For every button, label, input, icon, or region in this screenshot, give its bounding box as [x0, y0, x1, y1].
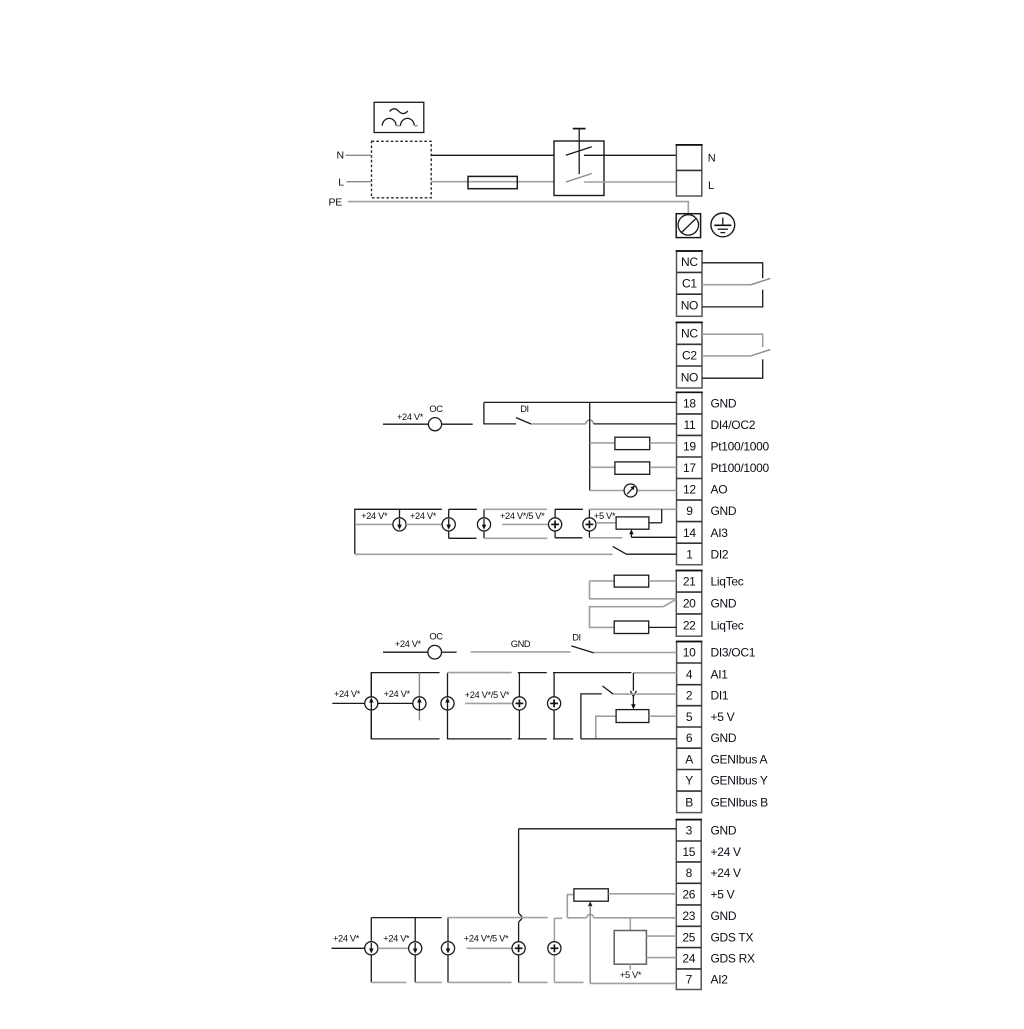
svg-text:+24 V: +24 V [711, 866, 741, 880]
svg-text:Y: Y [685, 774, 693, 788]
svg-text:GND: GND [711, 504, 737, 518]
svg-text:+5 V*: +5 V* [620, 970, 642, 980]
svg-text:GND: GND [711, 731, 737, 745]
svg-text:+5 V*: +5 V* [594, 511, 616, 521]
svg-text:L: L [338, 176, 344, 188]
svg-text:C2: C2 [682, 349, 697, 363]
svg-text:18: 18 [683, 397, 696, 411]
svg-text:+24 V*/5 V*: +24 V*/5 V* [500, 511, 545, 521]
svg-text:GDS RX: GDS RX [711, 952, 756, 966]
svg-text:+5 V: +5 V [711, 710, 735, 724]
svg-text:A: A [685, 752, 693, 766]
svg-text:LiqTec: LiqTec [711, 575, 744, 589]
svg-text:GENIbus A: GENIbus A [711, 752, 768, 766]
svg-text:21: 21 [683, 575, 696, 589]
svg-text:5: 5 [686, 710, 693, 724]
svg-text:6: 6 [686, 731, 693, 745]
svg-text:2: 2 [686, 689, 693, 703]
svg-text:NC: NC [681, 327, 698, 341]
svg-text:DI2: DI2 [711, 547, 729, 561]
svg-text:L: L [708, 180, 714, 192]
svg-text:DI: DI [572, 632, 581, 642]
svg-text:GENIbus B: GENIbus B [711, 795, 769, 809]
svg-text:1: 1 [686, 547, 693, 561]
svg-text:NC: NC [681, 255, 698, 269]
svg-text:GENIbus Y: GENIbus Y [711, 774, 768, 788]
svg-text:11: 11 [683, 418, 695, 432]
svg-text:14: 14 [683, 526, 696, 540]
svg-text:22: 22 [683, 618, 696, 632]
svg-text:DI3/OC1: DI3/OC1 [711, 646, 756, 660]
svg-text:+24 V*: +24 V* [384, 689, 411, 699]
svg-text:3: 3 [686, 824, 693, 838]
svg-text:15: 15 [682, 845, 695, 859]
svg-text:26: 26 [682, 888, 695, 902]
svg-text:10: 10 [683, 646, 696, 660]
svg-text:24: 24 [682, 952, 695, 966]
svg-text:GND: GND [711, 397, 737, 411]
svg-text:+24 V*: +24 V* [361, 511, 388, 521]
svg-text:AI2: AI2 [711, 973, 729, 987]
svg-text:8: 8 [686, 866, 693, 880]
svg-text:LiqTec: LiqTec [711, 618, 744, 632]
svg-text:12: 12 [683, 483, 696, 497]
svg-text:20: 20 [683, 596, 696, 610]
svg-text:+24 V*: +24 V* [395, 639, 422, 649]
svg-text:+24 V*/5 V*: +24 V*/5 V* [464, 934, 509, 944]
svg-text:25: 25 [682, 930, 695, 944]
svg-text:19: 19 [683, 440, 696, 454]
svg-text:AI3: AI3 [711, 526, 729, 540]
svg-text:7: 7 [686, 973, 693, 987]
svg-text:B: B [685, 795, 693, 809]
svg-text:17: 17 [683, 461, 696, 475]
svg-text:+24 V: +24 V [711, 845, 741, 859]
svg-text:DI: DI [520, 404, 529, 414]
svg-text:Pt100/1000: Pt100/1000 [711, 440, 770, 454]
svg-text:DI1: DI1 [711, 689, 729, 703]
svg-text:9: 9 [686, 504, 693, 518]
svg-text:GND: GND [711, 596, 737, 610]
svg-text:OC: OC [429, 404, 443, 414]
svg-text:+24 V*: +24 V* [334, 689, 361, 699]
svg-text:C1: C1 [682, 277, 697, 291]
svg-text:NO: NO [681, 299, 698, 313]
svg-text:AO: AO [711, 483, 728, 497]
svg-text:PE: PE [329, 197, 343, 209]
svg-text:+24 V*/5 V*: +24 V*/5 V* [465, 690, 510, 700]
svg-text:+24 V*: +24 V* [383, 934, 410, 944]
svg-text:NO: NO [681, 370, 698, 384]
svg-text:GND: GND [511, 639, 531, 649]
svg-text:+24 V*: +24 V* [410, 511, 437, 521]
svg-text:GND: GND [711, 909, 737, 923]
svg-text:N: N [708, 152, 716, 164]
svg-text:23: 23 [682, 909, 695, 923]
svg-text:OC: OC [429, 632, 443, 642]
svg-text:GDS TX: GDS TX [711, 930, 754, 944]
svg-text:GND: GND [711, 824, 737, 838]
svg-text:N: N [337, 150, 344, 162]
svg-text:DI4/OC2: DI4/OC2 [711, 418, 756, 432]
svg-text:AI1: AI1 [711, 667, 729, 681]
svg-text:+24 V*: +24 V* [333, 934, 360, 944]
svg-text:Pt100/1000: Pt100/1000 [711, 461, 770, 475]
svg-text:4: 4 [686, 667, 693, 681]
svg-text:+24 V*: +24 V* [397, 412, 424, 422]
svg-text:+5 V: +5 V [711, 888, 735, 902]
